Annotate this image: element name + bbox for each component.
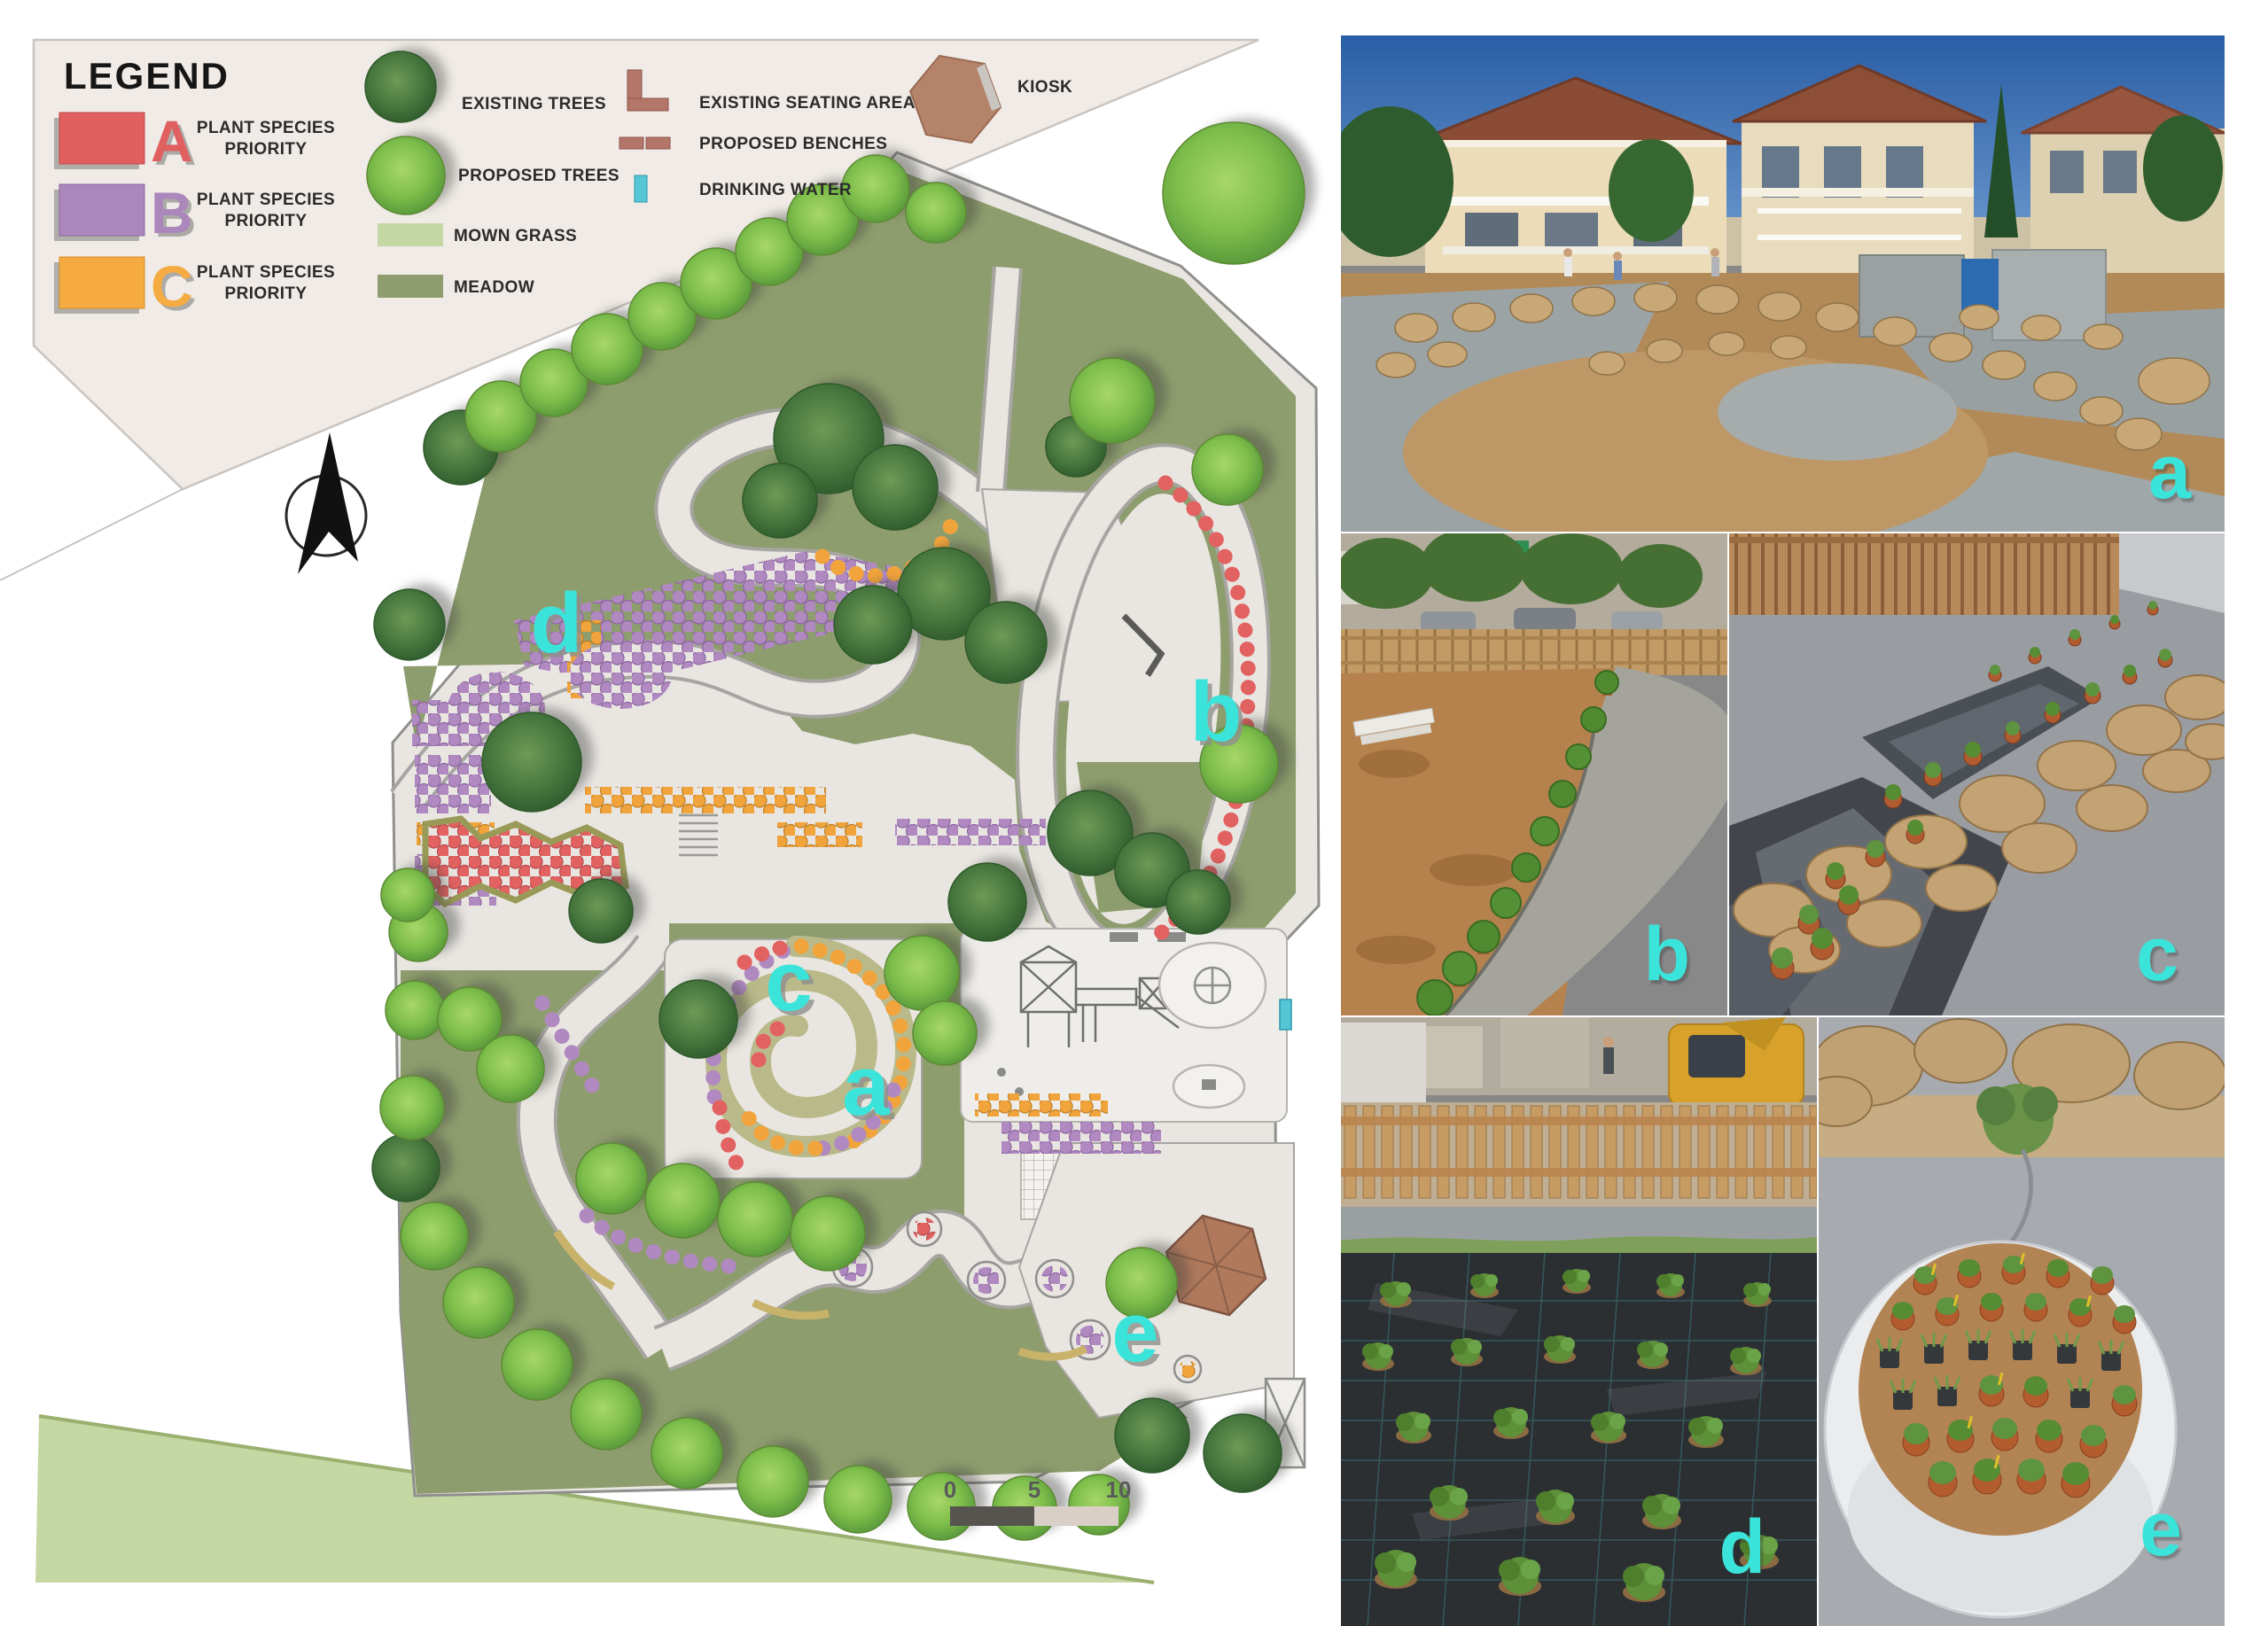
meadow-label: MEADOW — [454, 278, 534, 297]
priority-c-letter: C — [151, 253, 193, 319]
cars — [1421, 608, 1663, 633]
photo-c: c — [1729, 533, 2225, 1015]
photo-panel: a — [1341, 0, 2225, 1626]
photo-a-label: a — [2148, 434, 2191, 510]
drinking-water-label: DRINKING WATER — [699, 181, 852, 199]
fence — [1341, 629, 1727, 675]
figure-canvas: 0 5 10 LEGEND A A PLANT SPECIES PRIORITY… — [0, 0, 2268, 1626]
seating-area-label: EXISTING SEATING AREA — [699, 94, 916, 113]
scale-tick-0: 0 — [944, 1476, 956, 1503]
priority-c-label: PLANT SPECIES — [197, 263, 335, 282]
priority-b-label2: PRIORITY — [225, 212, 308, 230]
photo-e-label: e — [2139, 1491, 2182, 1568]
drinking-water-marker — [1280, 1000, 1291, 1030]
photo-b: b — [1341, 533, 1727, 1015]
photo-a-image — [1341, 35, 2225, 532]
priority-b-swatch — [59, 184, 144, 236]
priority-a-letter: A — [151, 108, 193, 174]
priority-a-label: PLANT SPECIES — [197, 119, 335, 137]
fence — [1729, 533, 2119, 615]
scale-tick-10: 10 — [1106, 1476, 1132, 1503]
kiosk-label: KIOSK — [1017, 78, 1072, 97]
mown-grass-label: MOWN GRASS — [454, 227, 577, 245]
photo-d: d — [1341, 1017, 1817, 1626]
priority-c-label2: PRIORITY — [225, 284, 308, 303]
legend-title: LEGEND — [64, 55, 230, 97]
benches-label: PROPOSED BENCHES — [699, 135, 887, 153]
existing-tree-icon — [365, 51, 436, 122]
bench-icon — [620, 137, 643, 149]
photo-c-label: c — [2136, 916, 2178, 992]
priority-a-swatch — [59, 113, 144, 164]
priority-b-label: PLANT SPECIES — [197, 191, 335, 209]
excavator — [1669, 1017, 1804, 1106]
photo-d-label: d — [1719, 1509, 1765, 1585]
scale-tick-5: 5 — [1028, 1476, 1040, 1503]
meadow-swatch — [378, 275, 443, 298]
plan-label-d: d — [531, 576, 583, 671]
photo-b-label: b — [1643, 916, 1690, 992]
existing-trees-label: EXISTING TREES — [462, 95, 606, 113]
legend-meadow: MEADOW — [378, 275, 534, 298]
photo-e: e — [1819, 1017, 2225, 1626]
legend-mown-grass: MOWN GRASS — [378, 223, 577, 246]
site-plan-panel: 0 5 10 LEGEND A A PLANT SPECIES PRIORITY… — [0, 0, 1329, 1626]
mown-grass-swatch — [378, 223, 443, 246]
proposed-trees-label: PROPOSED TREES — [458, 167, 620, 185]
priority-c-swatch — [59, 257, 144, 308]
proposed-tree-icon — [367, 136, 445, 214]
plan-label-b: b — [1190, 665, 1243, 759]
houses — [1410, 66, 2225, 275]
plan-label-c: c — [765, 934, 812, 1029]
plan-label-e: e — [1111, 1285, 1158, 1380]
plan-label-a: a — [842, 1039, 890, 1133]
picket-fence — [1341, 1102, 1817, 1207]
priority-a-label2: PRIORITY — [225, 140, 308, 159]
drinking-water-icon — [635, 175, 647, 202]
priority-b-letter: B — [151, 180, 193, 245]
north-arrow-icon — [286, 432, 366, 574]
photo-a: a — [1341, 35, 2225, 532]
